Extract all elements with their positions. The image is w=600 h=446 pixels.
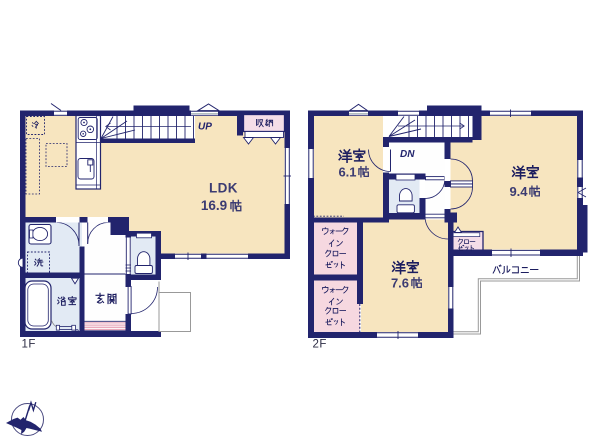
svg-text:UP: UP [198,122,212,133]
svg-text:LDK: LDK [209,181,238,196]
svg-text:16.9: 16.9 [201,198,227,213]
svg-text:2F: 2F [313,339,327,351]
svg-text:7.6: 7.6 [391,276,409,291]
svg-text:6.1: 6.1 [338,165,356,180]
svg-text:DN: DN [400,149,415,160]
svg-text:9.4: 9.4 [509,184,528,199]
svg-text:1F: 1F [22,339,36,351]
